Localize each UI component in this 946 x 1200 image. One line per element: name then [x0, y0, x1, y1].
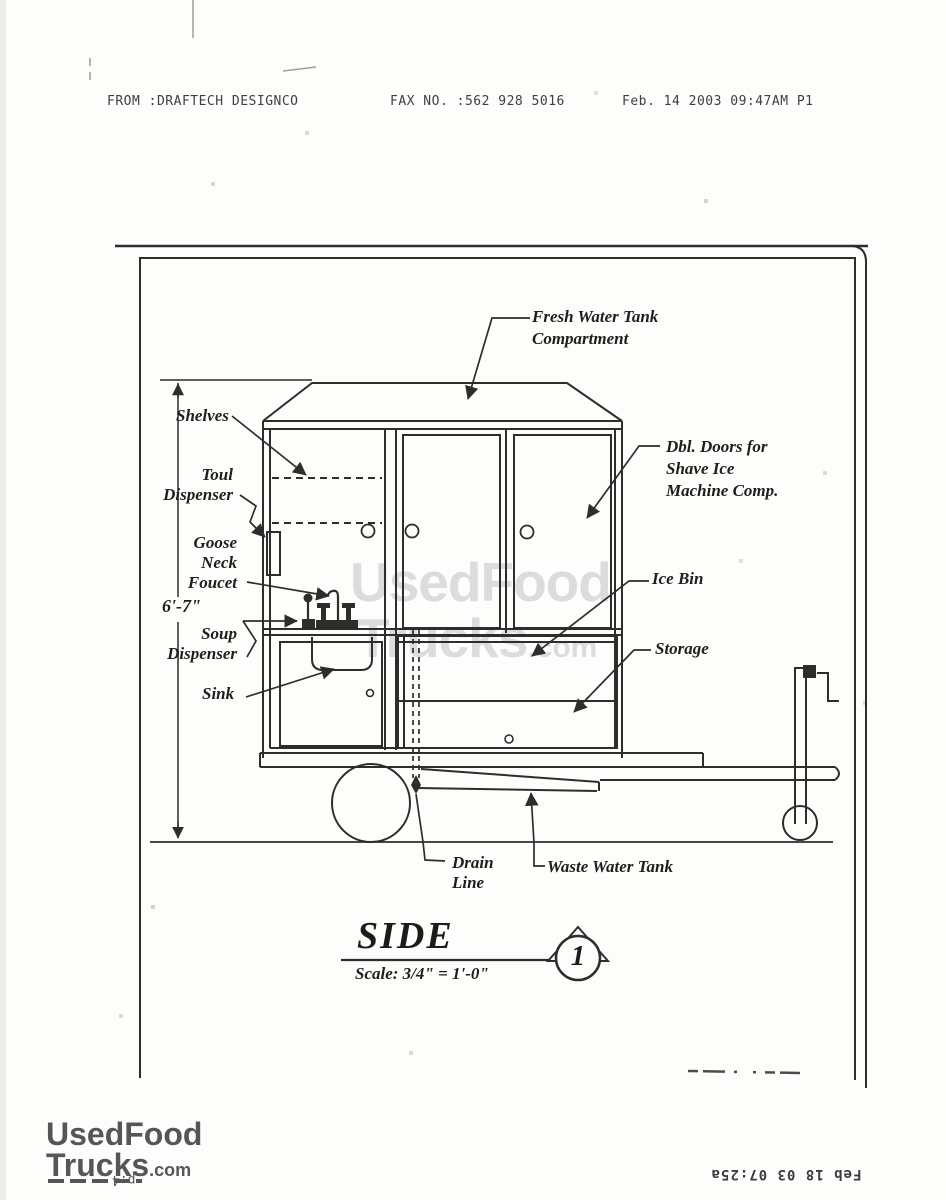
- scale-note: Scale: 3/4" = 1'-0": [355, 964, 489, 984]
- fax-footer-timestamp-rotated: Feb 18 03 07:25a: [700, 1166, 872, 1182]
- fax-page-note-rotated: p.4: [112, 1172, 135, 1187]
- trailer-side-view-drawing: [0, 0, 946, 1200]
- label-waste-water-tank: Waste Water Tank: [547, 857, 673, 877]
- dimension-value: 6'-7": [162, 596, 201, 616]
- scan-noise-specks: [0, 0, 2, 2]
- view-title: SIDE: [357, 914, 454, 958]
- label-fresh-water-tank-compartment: Fresh Water Tank Compartment: [532, 306, 658, 350]
- fax-scanned-page: FROM :DRAFTECH DESIGNCO FAX NO. :562 928…: [0, 0, 946, 1200]
- label-dbl-doors-shave-ice: Dbl. Doors for Shave Ice Machine Comp.: [666, 436, 778, 502]
- label-storage: Storage: [655, 639, 709, 659]
- label-ice-bin: Ice Bin: [652, 569, 703, 589]
- leader-arrows: [232, 318, 660, 866]
- label-toul-dispenser: Toul Dispenser: [148, 465, 233, 505]
- label-goose-neck-foucet: Goose Neck Foucet: [150, 533, 237, 593]
- label-soup-dispenser: Soup Dispenser: [150, 624, 237, 664]
- site-logo-suffix: .com: [149, 1160, 191, 1180]
- drawing-border: [115, 246, 868, 1088]
- label-shelves: Shelves: [176, 406, 229, 426]
- detail-callout-number: 1: [558, 940, 598, 973]
- label-drain-line: Drain Line: [452, 853, 494, 893]
- label-sink: Sink: [202, 684, 234, 704]
